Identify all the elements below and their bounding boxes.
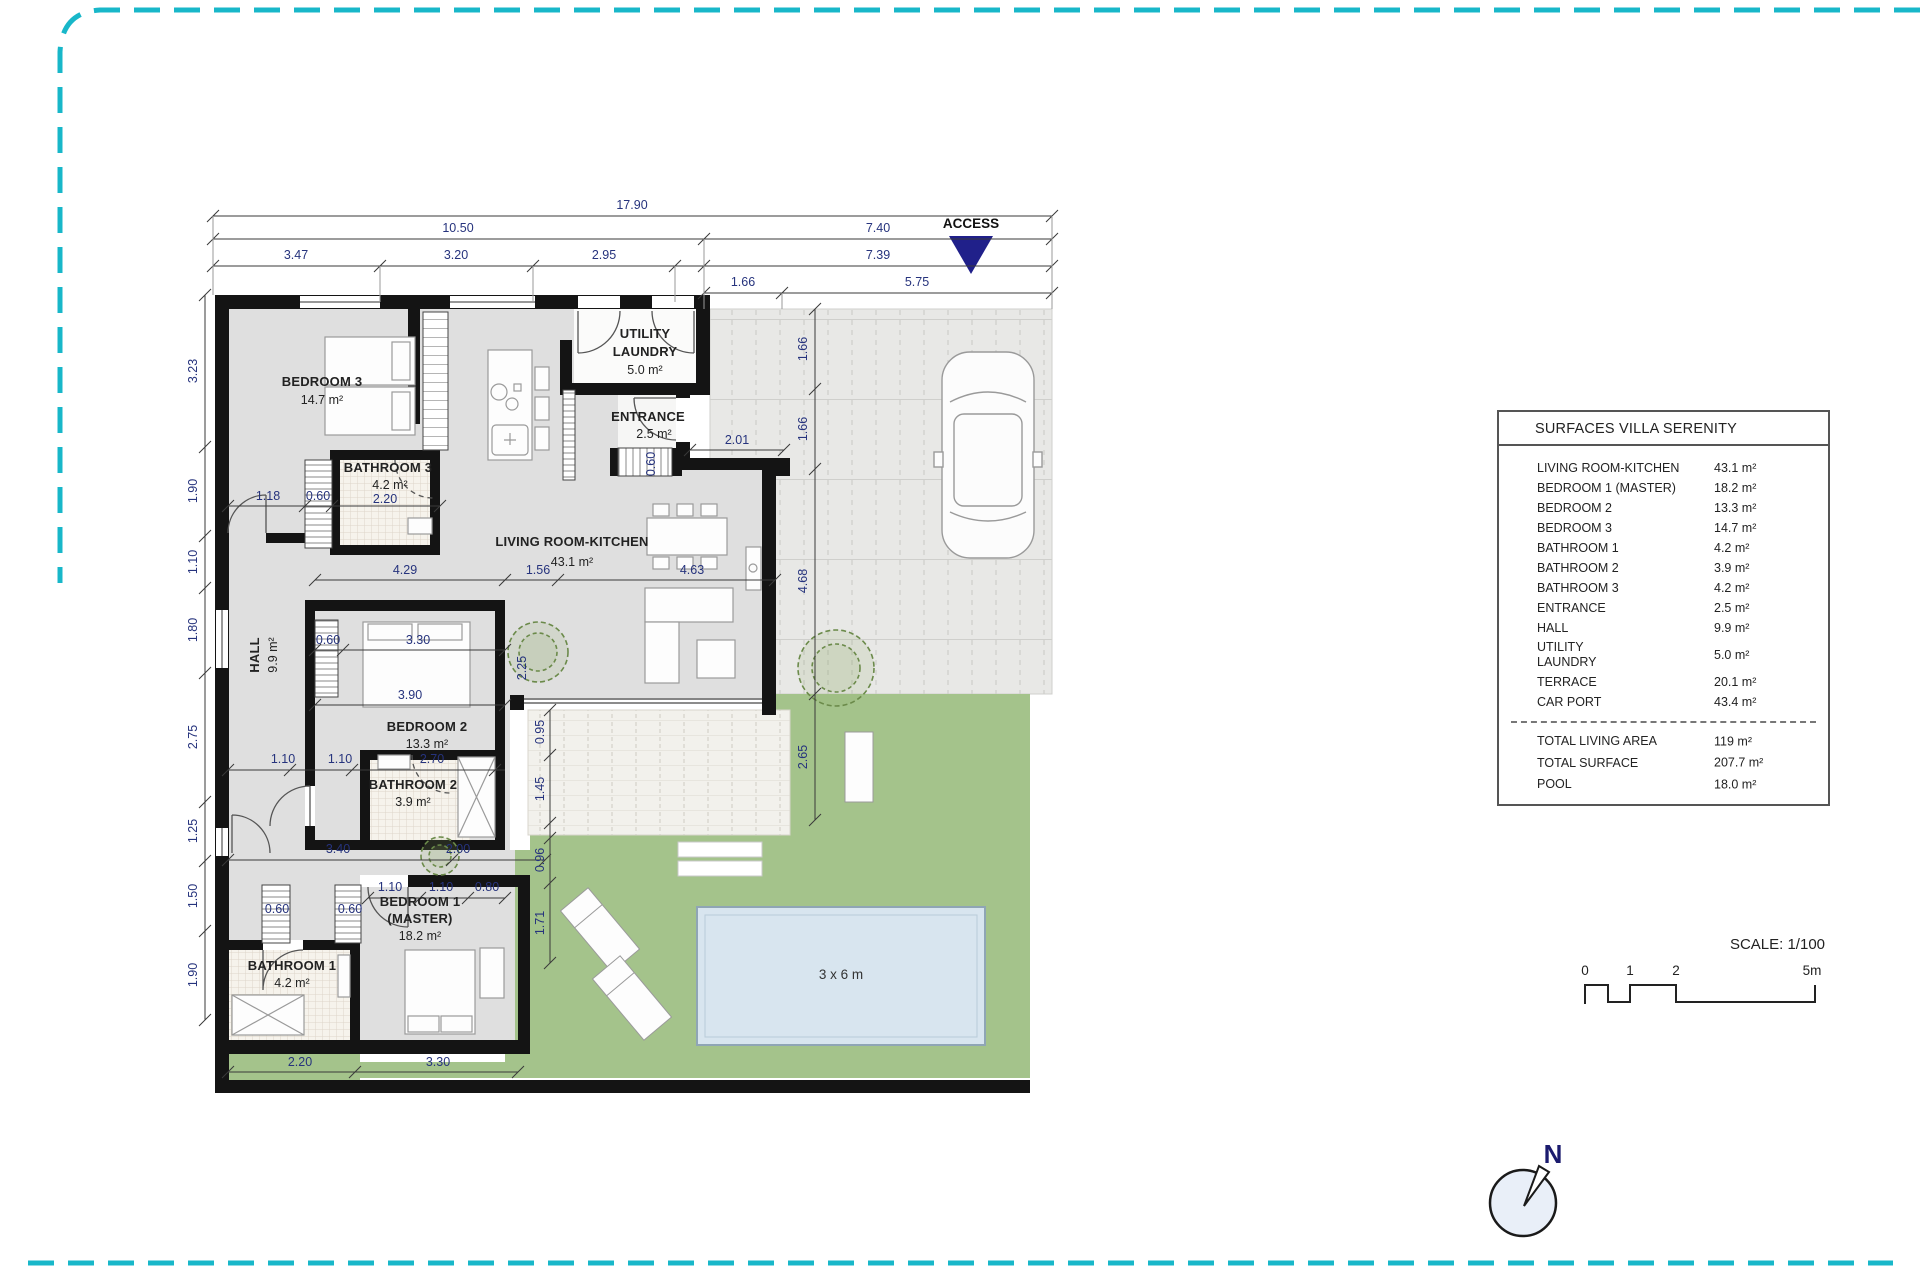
- dim-label: 1.18: [256, 489, 280, 503]
- row-label: CAR PORT: [1537, 695, 1601, 709]
- dim-label: 3.23: [186, 359, 200, 383]
- row-value: 18.0 m²: [1714, 774, 1756, 796]
- row-label: ENTRANCE: [1537, 601, 1606, 615]
- dim-label: 3.20: [444, 248, 468, 262]
- dim-label: 0.60: [338, 902, 362, 916]
- table-row: BEDROOM 213.3 m²: [1537, 498, 1828, 518]
- row-label: BATHROOM 2: [1537, 561, 1619, 575]
- row-value: 14.7 m²: [1714, 518, 1756, 538]
- dim-label: 1.56: [526, 563, 550, 577]
- table-row: ENTRANCE2.5 m²: [1537, 598, 1828, 618]
- dim-label: 5.75: [905, 275, 929, 289]
- dim-label: 1: [1626, 963, 1634, 978]
- dim-label: 2.25: [515, 656, 529, 680]
- dim-label: 2.95: [592, 248, 616, 262]
- dim-label: 7.40: [866, 221, 890, 235]
- table-row: TOTAL LIVING AREA119 m²: [1537, 731, 1828, 753]
- row-label: BATHROOM 1: [1537, 541, 1619, 555]
- dim-label: 0.96: [533, 848, 547, 872]
- room-label: 5.0 m²: [627, 363, 662, 377]
- row-label: BATHROOM 3: [1537, 581, 1619, 595]
- dim-label: 0.80: [475, 880, 499, 894]
- dim-label: 1.66: [731, 275, 755, 289]
- dim-label: 1.71: [533, 911, 547, 935]
- table-row: TOTAL SURFACE207.7 m²: [1537, 753, 1828, 775]
- row-label: UTILITY LAUNDRY: [1537, 640, 1597, 669]
- row-value: 13.3 m²: [1714, 498, 1756, 518]
- dim-label: 1.90: [186, 963, 200, 987]
- room-label: 4.2 m²: [274, 976, 309, 990]
- room-label: BEDROOM 2: [387, 719, 468, 734]
- dim-label: 0.60: [265, 902, 289, 916]
- room-label: 9.9 m²: [266, 637, 280, 672]
- row-label: HALL: [1537, 621, 1568, 635]
- table-row: BATHROOM 14.2 m²: [1537, 538, 1828, 558]
- dim-label: 2: [1672, 963, 1680, 978]
- row-value: 43.4 m²: [1714, 692, 1756, 712]
- room-label: ENTRANCE: [611, 409, 685, 424]
- dim-label: 1.10: [271, 752, 295, 766]
- room-label: BATHROOM 2: [369, 777, 457, 792]
- dim-label: 2.20: [373, 492, 397, 506]
- row-value: 9.9 m²: [1714, 618, 1749, 638]
- dim-label: 4.63: [680, 563, 704, 577]
- dim-label: 1.10: [186, 550, 200, 574]
- row-label: LIVING ROOM-KITCHEN: [1537, 461, 1679, 475]
- room-label: (MASTER): [387, 911, 452, 926]
- dim-label: 10.50: [442, 221, 473, 235]
- dim-label: 3.30: [426, 1055, 450, 1069]
- dim-label: 3.40: [326, 842, 350, 856]
- row-value: 119 m²: [1714, 731, 1752, 753]
- row-value: 20.1 m²: [1714, 672, 1756, 692]
- table-row: LIVING ROOM-KITCHEN43.1 m²: [1537, 458, 1828, 478]
- dim-label: 1.80: [186, 618, 200, 642]
- room-label: 3.9 m²: [395, 795, 430, 809]
- dim-label: 1.66: [796, 337, 810, 361]
- row-label: TOTAL LIVING AREA: [1537, 734, 1657, 748]
- dim-label: 0.95: [533, 720, 547, 744]
- dim-label: ACCESS: [943, 216, 999, 231]
- table-row: HALL9.9 m²: [1537, 618, 1828, 638]
- table-row: CAR PORT43.4 m²: [1537, 692, 1828, 712]
- dim-label: 1.50: [186, 884, 200, 908]
- room-label: 18.2 m²: [399, 929, 441, 943]
- dim-label: 2.01: [725, 433, 749, 447]
- row-value: 207.7 m²: [1714, 753, 1763, 775]
- surfaces-table: SURFACES VILLA SERENITY LIVING ROOM-KITC…: [1497, 410, 1830, 806]
- room-label: BEDROOM 1: [380, 894, 461, 909]
- dim-label: 1.25: [186, 819, 200, 843]
- row-value: 18.2 m²: [1714, 478, 1756, 498]
- table-row: POOL18.0 m²: [1537, 774, 1828, 796]
- dim-label: 5m: [1803, 963, 1822, 978]
- dim-label: 3.47: [284, 248, 308, 262]
- row-value: 2.5 m²: [1714, 598, 1749, 618]
- room-label: 14.7 m²: [301, 393, 343, 407]
- dim-label: 1.66: [796, 417, 810, 441]
- garden-bench: [845, 732, 873, 802]
- row-label: TOTAL SURFACE: [1537, 756, 1638, 770]
- dim-label: 4.29: [393, 563, 417, 577]
- surfaces-table-title: SURFACES VILLA SERENITY: [1499, 412, 1828, 446]
- dim-label: 2.70: [420, 752, 444, 766]
- dim-label: 1.10: [429, 880, 453, 894]
- row-label: POOL: [1537, 777, 1572, 791]
- room-label: 13.3 m²: [406, 737, 448, 751]
- row-label: BEDROOM 1 (MASTER): [1537, 481, 1676, 495]
- table-row: BEDROOM 314.7 m²: [1537, 518, 1828, 538]
- room-label: 43.1 m²: [551, 555, 593, 569]
- north-arrow: [1490, 1166, 1556, 1236]
- dim-label: 1.10: [328, 752, 352, 766]
- dim-label: 0.60: [644, 452, 658, 476]
- row-value: 3.9 m²: [1714, 558, 1749, 578]
- dim-label: 1.10: [378, 880, 402, 894]
- dim-label: 2.20: [288, 1055, 312, 1069]
- dim-label: 1.90: [186, 479, 200, 503]
- row-value: 4.2 m²: [1714, 538, 1749, 558]
- dim-label: 2.00: [446, 842, 470, 856]
- surfaces-table-rows: LIVING ROOM-KITCHEN43.1 m²BEDROOM 1 (MAS…: [1499, 446, 1828, 712]
- floor-plan-sheet: { "table": { "title": "SURFACES VILLA SE…: [0, 0, 1920, 1280]
- room-label: BEDROOM 3: [282, 374, 363, 389]
- access-arrow: [949, 236, 993, 274]
- dim-label: N: [1544, 1139, 1563, 1169]
- table-row: BATHROOM 23.9 m²: [1537, 558, 1828, 578]
- dim-label: 3.90: [398, 688, 422, 702]
- room-label: HALL: [247, 637, 262, 672]
- row-label: BEDROOM 3: [1537, 521, 1612, 535]
- dim-label: 0.60: [306, 489, 330, 503]
- dim-label: 0.60: [316, 633, 340, 647]
- room-label: LAUNDRY: [613, 344, 678, 359]
- row-value: 4.2 m²: [1714, 578, 1749, 598]
- dim-label: SCALE: 1/100: [1730, 936, 1825, 953]
- dim-label: 2.65: [796, 745, 810, 769]
- room-label: 2.5 m²: [636, 427, 671, 441]
- dim-label: 7.39: [866, 248, 890, 262]
- dim-label: 17.90: [616, 198, 647, 212]
- room-label: UTILITY: [620, 326, 671, 341]
- surfaces-table-totals: TOTAL LIVING AREA119 m²TOTAL SURFACE207.…: [1499, 723, 1828, 796]
- room-label: LIVING ROOM-KITCHEN: [495, 534, 648, 549]
- table-row: BEDROOM 1 (MASTER)18.2 m²: [1537, 478, 1828, 498]
- dim-label: 1.45: [533, 777, 547, 801]
- room-label: 4.2 m²: [372, 478, 407, 492]
- car: [934, 352, 1042, 558]
- dim-label: 3.30: [406, 633, 430, 647]
- table-row: BATHROOM 34.2 m²: [1537, 578, 1828, 598]
- row-value: 5.0 m²: [1714, 648, 1749, 663]
- dim-label: 4.68: [796, 569, 810, 593]
- dim-label: 0: [1581, 963, 1589, 978]
- room-label: BATHROOM 3: [344, 460, 432, 475]
- scale-bar: [1585, 985, 1815, 1004]
- row-label: BEDROOM 2: [1537, 501, 1612, 515]
- room-label: BATHROOM 1: [248, 958, 336, 973]
- terrace: [528, 710, 790, 835]
- row-label: TERRACE: [1537, 675, 1597, 689]
- table-row: UTILITY LAUNDRY5.0 m²: [1537, 638, 1828, 672]
- dim-label: 3 x 6 m: [819, 967, 863, 982]
- dim-label: 2.75: [186, 725, 200, 749]
- row-value: 43.1 m²: [1714, 458, 1756, 478]
- table-row: TERRACE20.1 m²: [1537, 672, 1828, 692]
